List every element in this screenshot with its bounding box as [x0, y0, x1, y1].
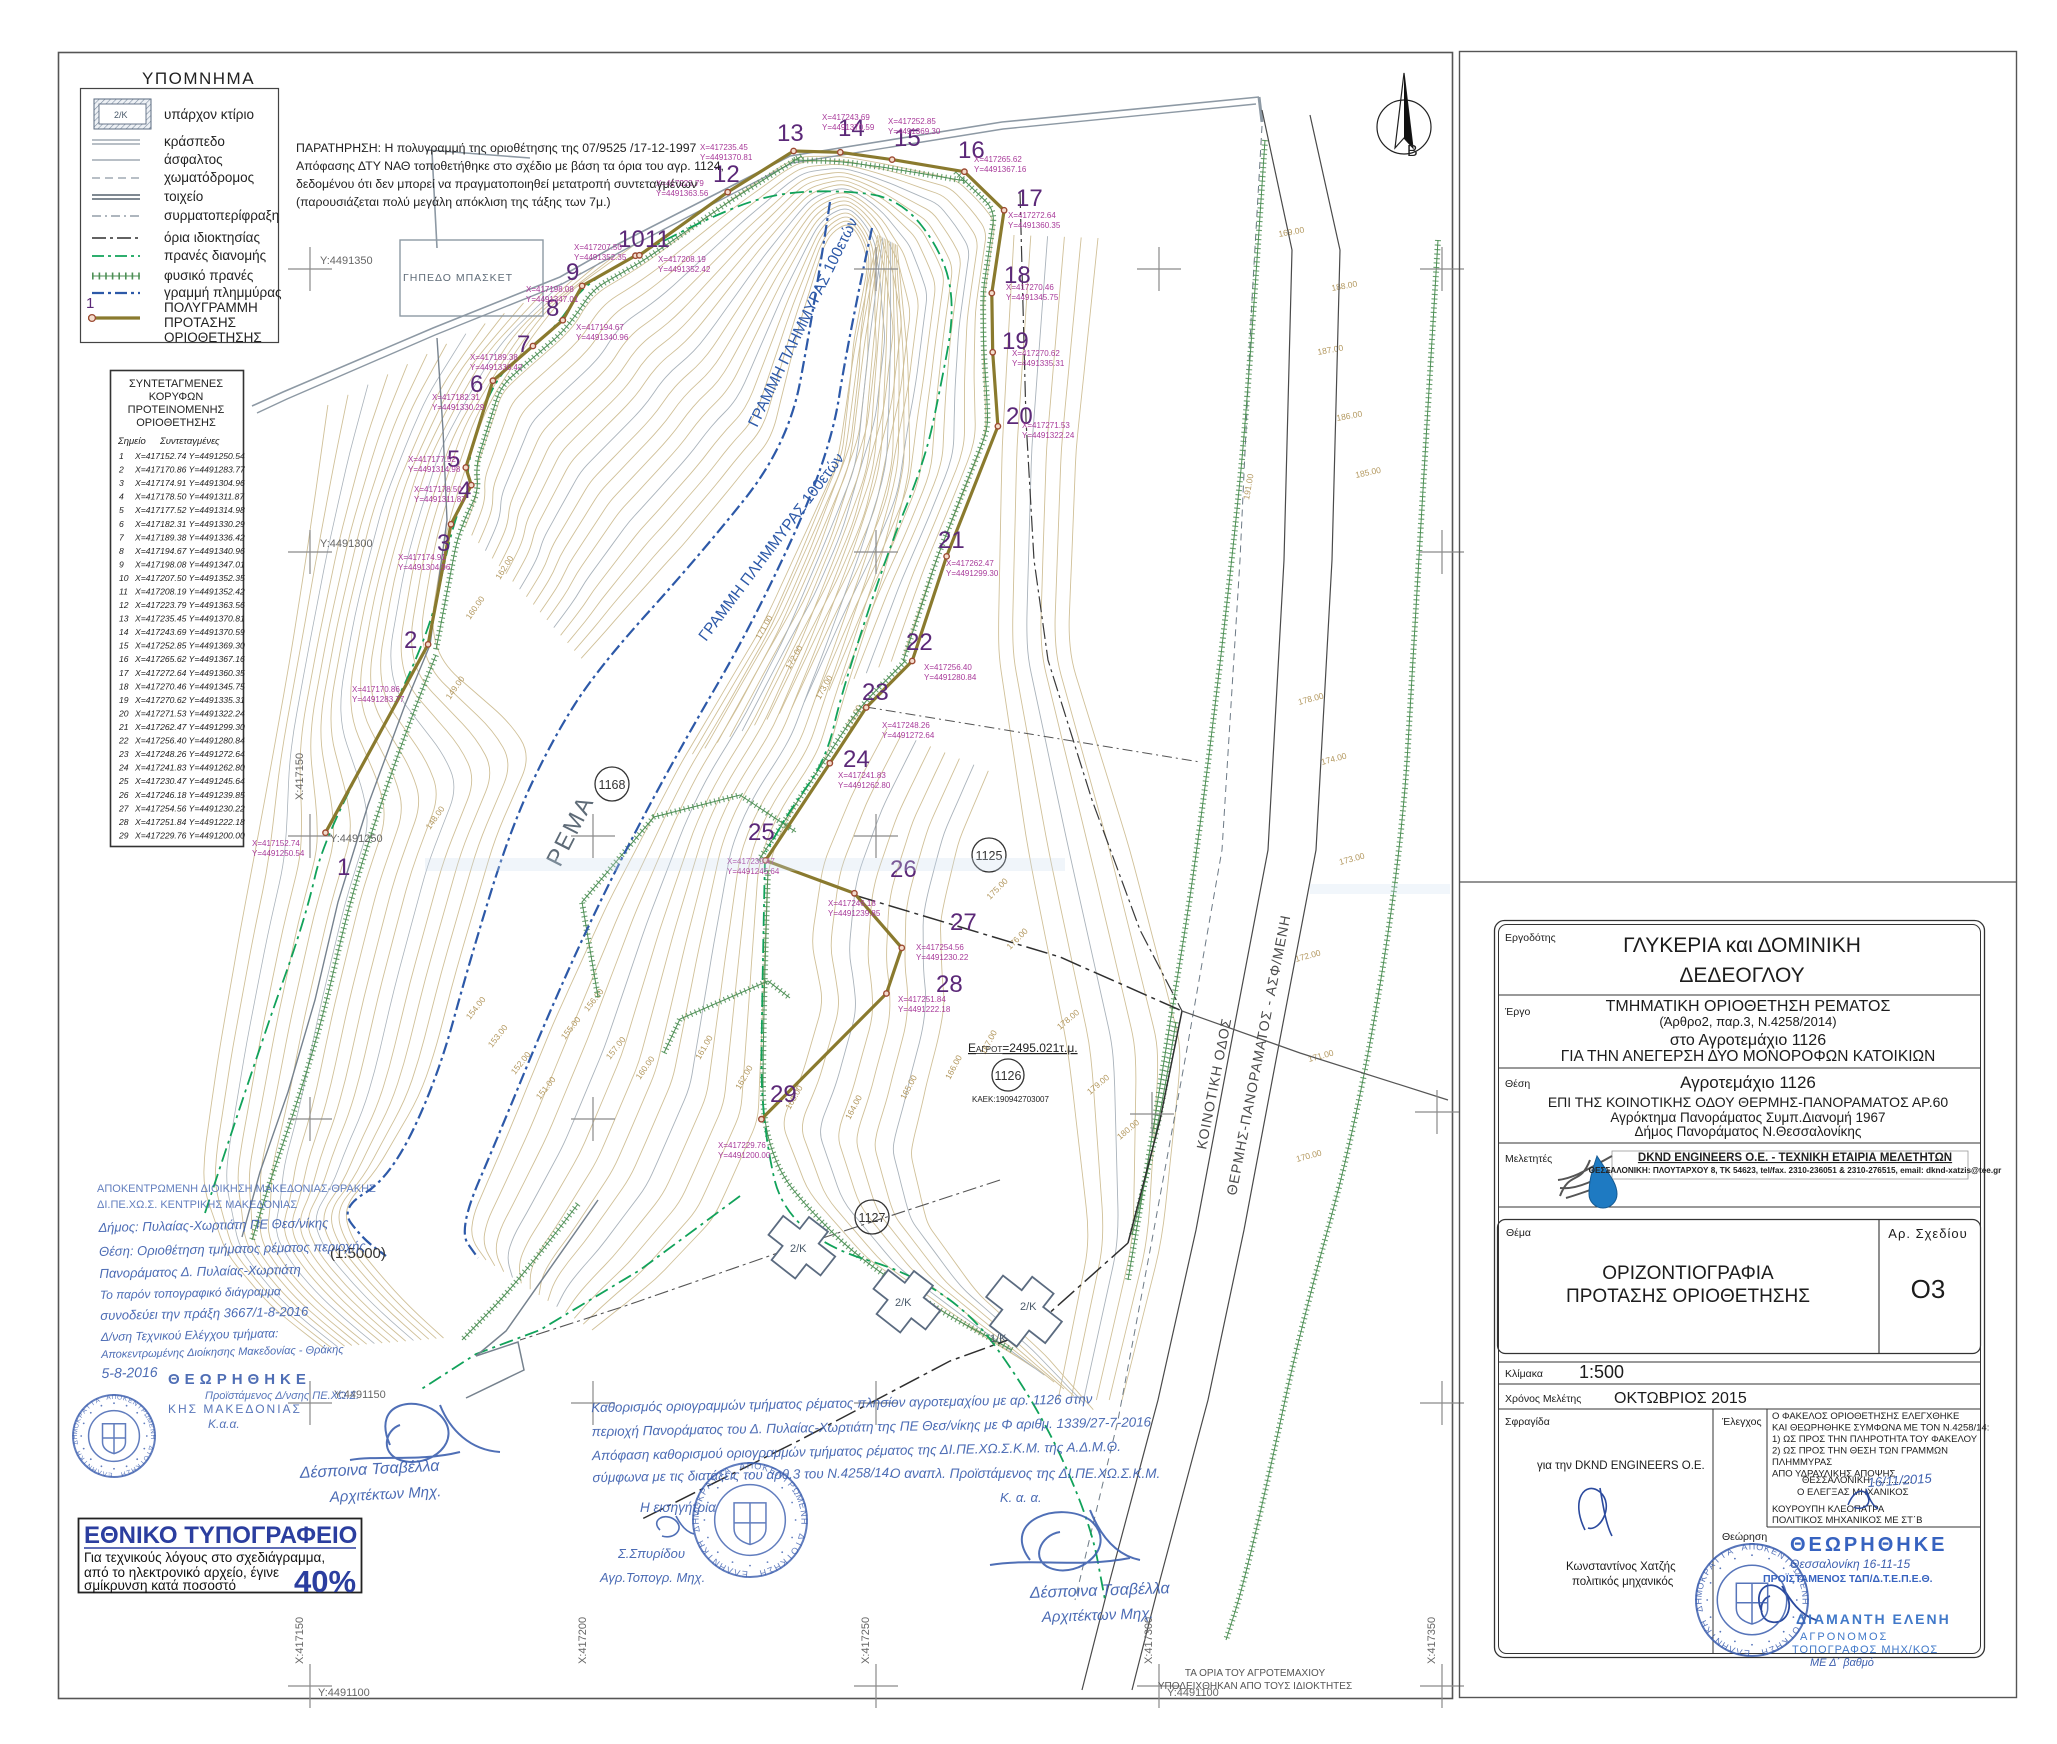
svg-text:X=417272.64: X=417272.64: [1008, 211, 1056, 220]
svg-text:Η: Η: [1694, 1598, 1704, 1605]
svg-text:Έργο: Έργο: [1504, 1006, 1530, 1018]
svg-text:ΜΕ Δ΄ βαθμό: ΜΕ Δ΄ βαθμό: [1810, 1657, 1874, 1669]
svg-text:Y=4491283.77: Y=4491283.77: [352, 695, 405, 704]
svg-text:28: 28: [118, 817, 129, 827]
svg-text:1: 1: [86, 295, 94, 312]
svg-text:17: 17: [1016, 185, 1043, 212]
svg-text:υπάρχον κτίριο: υπάρχον κτίριο: [164, 107, 254, 122]
svg-text:Y=4491370.59: Y=4491370.59: [822, 123, 875, 132]
svg-text:Y=4491239.85: Y=4491239.85: [828, 909, 881, 918]
svg-text:Y=4491304.96: Y=4491304.96: [398, 563, 451, 572]
svg-text:X=417251.84 Y=4491222.18: X=417251.84 Y=4491222.18: [134, 817, 245, 827]
svg-text:X=417243.69: X=417243.69: [822, 113, 870, 122]
svg-text:ΤΑ ΟΡΙΑ ΤΟΥ ΑΓΡΟΤΕΜΑΧΙΟΥ: ΤΑ ΟΡΙΑ ΤΟΥ ΑΓΡΟΤΕΜΑΧΙΟΥ: [1185, 1668, 1326, 1679]
svg-text:Y=4491250.54: Y=4491250.54: [252, 849, 305, 858]
svg-text:ΔΙ.ΠΕ.ΧΩ.Σ. ΚΕΝΤΡΙΚΗΣ ΜΑΚΕΔΟ: ΔΙ.ΠΕ.ΧΩ.Σ. ΚΕΝΤΡΙΚΗΣ ΜΑΚΕΔΟΝΙΑΣ: [97, 1199, 297, 1211]
svg-text:Π: Π: [1749, 1542, 1755, 1552]
svg-text:X=417182.31: X=417182.31: [432, 393, 480, 402]
svg-text:X=417251.84: X=417251.84: [898, 995, 946, 1004]
svg-text:X:417250: X:417250: [860, 1617, 872, 1664]
svg-text:ΓΙΑ ΤΗΝ ΑΝΕΓΕΡΣΗ ΔΥΟ ΜΟΝΟΡΟΦΩΝ: ΓΙΑ ΤΗΝ ΑΝΕΓΕΡΣΗ ΔΥΟ ΜΟΝΟΡΟΦΩΝ ΚΑΤΟΙΚΙΩΝ: [1561, 1048, 1936, 1065]
svg-text:X=417223.79 Y=4491363.56: X=417223.79 Y=4491363.56: [134, 600, 245, 610]
svg-text:ΚΗΣ ΜΑΚΕΔΟΝΙΑΣ: ΚΗΣ ΜΑΚΕΔΟΝΙΑΣ: [168, 1402, 302, 1416]
svg-text:1: 1: [119, 451, 124, 461]
svg-text:2/K: 2/K: [895, 1297, 912, 1309]
svg-text:X=417254.56 Y=4491230.22: X=417254.56 Y=4491230.22: [134, 803, 245, 813]
svg-text:ΕΠΙ ΤΗΣ ΚΟΙΝΟΤΙΚΗΣ ΟΔΟΥ ΘΕΡΜΗΣ: ΕΠΙ ΤΗΣ ΚΟΙΝΟΤΙΚΗΣ ΟΔΟΥ ΘΕΡΜΗΣ-ΠΑΝΟΡΑΜΑΤ…: [1548, 1094, 1949, 1110]
svg-text:X=417194.67 Y=4491340.96: X=417194.67 Y=4491340.96: [134, 546, 245, 556]
svg-text:Y=4491369.30: Y=4491369.30: [888, 127, 941, 136]
svg-text:X=417177.52 Y=4491314.98: X=417177.52 Y=4491314.98: [134, 505, 245, 515]
svg-text:X=417170.86: X=417170.86: [352, 685, 400, 694]
svg-text:X=417198.08: X=417198.08: [526, 285, 574, 294]
svg-text:Ε: Ε: [1743, 1648, 1750, 1659]
svg-text:20: 20: [118, 709, 129, 719]
svg-text:Y=4491262.80: Y=4491262.80: [838, 781, 891, 790]
svg-text:9: 9: [119, 559, 124, 569]
svg-text:X=417256.40 Y=4491280.84: X=417256.40 Y=4491280.84: [134, 736, 245, 746]
svg-text:X=417208.19: X=417208.19: [658, 255, 706, 264]
svg-text:X=417246.18: X=417246.18: [828, 899, 876, 908]
svg-text:23: 23: [862, 679, 889, 706]
svg-text:X=417198.08 Y=4491347.01: X=417198.08 Y=4491347.01: [134, 559, 245, 569]
svg-text:29: 29: [770, 1081, 797, 1108]
svg-text:ΚΟΥΡΟΥΠΗ ΚΛΕΟΠΑΤΡΑ: ΚΟΥΡΟΥΠΗ ΚΛΕΟΠΑΤΡΑ: [1772, 1504, 1885, 1515]
svg-text:B: B: [1407, 143, 1418, 160]
svg-text:Θέση: Θέση: [1505, 1078, 1530, 1090]
svg-text:Y=4491200.00: Y=4491200.00: [718, 1151, 771, 1160]
svg-text:X=417252.85 Y=4491369.30: X=417252.85 Y=4491369.30: [134, 641, 245, 651]
svg-text:Y:4491250: Y:4491250: [330, 833, 383, 845]
svg-text:ΓΗΠΕΔΟ ΜΠΑΣΚΕΤ: ΓΗΠΕΔΟ ΜΠΑΣΚΕΤ: [403, 272, 513, 284]
svg-text:26: 26: [118, 790, 129, 800]
svg-text:X:417300: X:417300: [1143, 1617, 1155, 1664]
svg-text:11: 11: [119, 587, 128, 597]
svg-text:ΘΕΣΣΑΛΟΝΙΚΗ: ΠΛΟΥΤΑΡΧΟΥ 8, ΤΚ: ΘΕΣΣΑΛΟΝΙΚΗ: ΠΛΟΥΤΑΡΧΟΥ 8, ΤΚ 54623, tel…: [1589, 1166, 2002, 1175]
svg-text:ΟΡΙΖΟΝΤΙΟΓΡΑΦΙΑ: ΟΡΙΖΟΝΤΙΟΓΡΑΦΙΑ: [1602, 1263, 1774, 1284]
svg-text:13: 13: [119, 614, 129, 624]
svg-text:ΠΡΟΤΕΙΝΟΜΕΝΗΣ: ΠΡΟΤΕΙΝΟΜΕΝΗΣ: [128, 404, 225, 416]
svg-text:Y=4491336.42: Y=4491336.42: [470, 363, 523, 372]
svg-text:X=417189.38: X=417189.38: [470, 353, 518, 362]
svg-text:ΑΠΟΚΕΝΤΡΩΜΕΝΗ ΔΙΟΙΚΗΣΗ ΜΑΚΕΔΟΝ: ΑΠΟΚΕΝΤΡΩΜΕΝΗ ΔΙΟΙΚΗΣΗ ΜΑΚΕΔΟΝΙΑΣ-ΘΡΑΚΗΣ: [97, 1183, 376, 1195]
svg-text:για την DKND ENGINEERS O.E.: για την DKND ENGINEERS O.E.: [1537, 1460, 1705, 1472]
svg-text:Y=4491322.24: Y=4491322.24: [1022, 431, 1075, 440]
svg-text:Y=4491314.98: Y=4491314.98: [408, 465, 461, 474]
svg-text:10: 10: [119, 573, 129, 583]
svg-text:στο Αγροτεμάχιο 1126: στο Αγροτεμάχιο 1126: [1670, 1032, 1826, 1049]
svg-text:Y=4491311.87: Y=4491311.87: [414, 495, 466, 504]
svg-text:X=417207.50: X=417207.50: [574, 243, 622, 252]
svg-text:X=417270.46: X=417270.46: [1006, 283, 1054, 292]
svg-text:Η: Η: [799, 1518, 809, 1525]
svg-text:Y=4491347.01: Y=4491347.01: [526, 295, 579, 304]
svg-text:ΟΡΙΟΘΕΤΗΣΗΣ: ΟΡΙΟΘΕΤΗΣΗΣ: [136, 417, 216, 429]
svg-text:Αγρόκτημα Πανοράματος Συμπ.Δια: Αγρόκτημα Πανοράματος Συμπ.Διανομή 1967: [1610, 1110, 1885, 1125]
svg-text:Απόφασης ΔΤΥ ΝΑΘ τοποθετήθηκε: Απόφασης ΔΤΥ ΝΑΘ τοποθετήθηκε στο σχέδιο…: [296, 159, 724, 173]
svg-text:Y=4491360.35: Y=4491360.35: [1008, 221, 1061, 230]
svg-text:Ε: Ε: [741, 1569, 748, 1580]
svg-text:Y=4491330.29: Y=4491330.29: [432, 403, 485, 412]
svg-text:9: 9: [566, 259, 579, 286]
svg-text:21: 21: [938, 527, 965, 554]
svg-text:11: 11: [645, 226, 670, 253]
svg-text:Y=4491272.64: Y=4491272.64: [882, 731, 935, 740]
svg-text:22: 22: [118, 736, 129, 746]
svg-text:Αγρ.Τοπογρ. Μηχ.: Αγρ.Τοπογρ. Μηχ.: [599, 1570, 705, 1585]
svg-text:24: 24: [843, 746, 870, 773]
svg-text:Y=4491335.31: Y=4491335.31: [1012, 359, 1065, 368]
svg-text:Y:4491100: Y:4491100: [318, 1687, 370, 1699]
svg-text:X=417230.47 Y=4491245.64: X=417230.47 Y=4491245.64: [134, 776, 245, 786]
svg-text:X=417271.53: X=417271.53: [1022, 421, 1070, 430]
svg-text:Αρ. Σχεδίου: Αρ. Σχεδίου: [1888, 1226, 1967, 1241]
svg-text:ΚΟΡΥΦΩΝ: ΚΟΡΥΦΩΝ: [149, 391, 204, 403]
svg-text:ΥΠΟΜΝΗΜΑ: ΥΠΟΜΝΗΜΑ: [142, 69, 255, 88]
svg-text:10: 10: [618, 226, 645, 253]
svg-text:X=417270.46 Y=4491345.75: X=417270.46 Y=4491345.75: [134, 681, 245, 691]
svg-text:X:417350: X:417350: [1426, 1617, 1438, 1664]
svg-text:X=417152.74 Y=4491250.54: X=417152.74 Y=4491250.54: [134, 451, 245, 461]
svg-text:27: 27: [118, 803, 130, 813]
svg-text:25: 25: [748, 819, 775, 846]
svg-text:Y=4491352.42: Y=4491352.42: [658, 265, 711, 274]
svg-text:Δήμος Πανοράματος Ν.Θεσσαλονί: Δήμος Πανοράματος Ν.Θεσσαλονίκης: [1635, 1124, 1862, 1139]
svg-text:Ο ΦΑΚΕΛΟΣ ΟΡΙΟΘΕΤΗΣΗΣ ΕΛΕΓΧΘΗΚ: Ο ΦΑΚΕΛΟΣ ΟΡΙΟΘΕΤΗΣΗΣ ΕΛΕΓΧΘΗΚΕ: [1772, 1411, 1959, 1422]
svg-text:X:417150: X:417150: [294, 1617, 306, 1664]
svg-text:σμίκρυνση κατά ποσοστό: σμίκρυνση κατά ποσοστό: [84, 1578, 236, 1593]
svg-text:Σφραγίδα: Σφραγίδα: [1505, 1416, 1550, 1428]
svg-text:ΑΓΡΟΝΟΜΟΣ: ΑΓΡΟΝΟΜΟΣ: [1800, 1631, 1888, 1643]
svg-text:δεδομένου ότι δεν μπορεί να πρ: δεδομένου ότι δεν μπορεί να πραγματοποιη…: [296, 177, 697, 191]
svg-text:X=417189.38 Y=4491336.42: X=417189.38 Y=4491336.42: [134, 532, 245, 542]
svg-text:Μελετητές: Μελετητές: [1505, 1153, 1552, 1165]
svg-text:φυσικό πρανές: φυσικό πρανές: [164, 268, 254, 283]
svg-text:X=417241.83: X=417241.83: [838, 771, 886, 780]
svg-text:X=417265.62 Y=4491367.16: X=417265.62 Y=4491367.16: [134, 654, 245, 664]
svg-text:X=417265.62: X=417265.62: [974, 155, 1022, 164]
svg-text:Y=4491230.22: Y=4491230.22: [916, 953, 969, 962]
svg-text:ΓΛΥΚΕΡΙΑ και ΔΟΜΙΝΙΚΗ: ΓΛΥΚΕΡΙΑ και ΔΟΜΙΝΙΚΗ: [1623, 934, 1861, 957]
svg-text:X=417229.76 Y=4491200.00: X=417229.76 Y=4491200.00: [134, 830, 245, 840]
svg-text:3: 3: [119, 478, 124, 488]
svg-text:πρανές διανομής: πρανές διανομής: [164, 248, 267, 263]
svg-text:X=417178.50: X=417178.50: [414, 485, 462, 494]
svg-text:Η: Η: [149, 1434, 156, 1439]
svg-text:Y=4491345.75: Y=4491345.75: [1006, 293, 1059, 302]
svg-text:Y=4491340.96: Y=4491340.96: [576, 333, 629, 342]
svg-text:Y:4491350: Y:4491350: [320, 255, 373, 267]
svg-text:Y=4491352.35: Y=4491352.35: [574, 253, 627, 262]
svg-text:συρματοπερίφραξη: συρματοπερίφραξη: [164, 208, 279, 223]
svg-text:X=417270.62: X=417270.62: [1012, 349, 1060, 358]
svg-text:1) ΩΣ ΠΡΟΣ ΤΗΝ ΠΛΗΡΟΤΗΤΑ ΤΟΥ Φ: 1) ΩΣ ΠΡΟΣ ΤΗΝ ΠΛΗΡΟΤΗΤΑ ΤΟΥ ΦΑΚΕΛΟΥ: [1772, 1434, 1978, 1445]
svg-text:X=417178.50 Y=4491311.87: X=417178.50 Y=4491311.87: [134, 492, 245, 502]
svg-text:X=417174.91 Y=4491304.96: X=417174.91 Y=4491304.96: [134, 478, 245, 488]
svg-text:ΤΟΠΟΓΡΑΦΟΣ ΜΗΧ/ΚΟΣ: ΤΟΠΟΓΡΑΦΟΣ ΜΗΧ/ΚΟΣ: [1792, 1644, 1938, 1656]
svg-text:κράσπεδο: κράσπεδο: [164, 134, 225, 149]
svg-text:X=417262.47 Y=4491299.30: X=417262.47 Y=4491299.30: [134, 722, 245, 732]
svg-text:Y=4491280.84: Y=4491280.84: [924, 673, 977, 682]
svg-text:άσφαλτος: άσφαλτος: [164, 152, 223, 167]
svg-text:27: 27: [950, 909, 977, 936]
svg-text:X=417177.52: X=417177.52: [408, 455, 456, 464]
svg-text:ΣΥΝΤΕΤΑΓΜΕΝΕΣ: ΣΥΝΤΕΤΑΓΜΕΝΕΣ: [129, 378, 223, 390]
svg-text:Η: Η: [1800, 1598, 1810, 1605]
svg-text:24: 24: [118, 763, 129, 773]
svg-text:12: 12: [119, 600, 129, 610]
svg-text:1126: 1126: [995, 1069, 1022, 1083]
svg-text:14: 14: [119, 627, 129, 637]
svg-text:ΠΡΟΤΑΣΗΣ ΟΡΙΟΘΕΤΗΣΗΣ: ΠΡΟΤΑΣΗΣ ΟΡΙΟΘΕΤΗΣΗΣ: [1566, 1286, 1810, 1307]
svg-text:ΠΑΡΑΤΗΡΗΣΗ: Η πολυγραμμή της ο: ΠΑΡΑΤΗΡΗΣΗ: Η πολυγραμμή της οριοθέτησης…: [296, 141, 697, 155]
svg-text:22: 22: [906, 629, 933, 656]
svg-text:2: 2: [118, 465, 124, 475]
svg-text:X=417241.83 Y=4491262.80: X=417241.83 Y=4491262.80: [134, 763, 245, 773]
svg-text:Y=4491222.18: Y=4491222.18: [898, 1005, 951, 1014]
svg-text:ΟΡΙΟΘΕΤΗΣΗΣ: ΟΡΙΟΘΕΤΗΣΗΣ: [164, 330, 262, 345]
svg-text:X=417182.31 Y=4491330.29: X=417182.31 Y=4491330.29: [134, 519, 245, 529]
svg-text:4: 4: [119, 492, 124, 502]
svg-text:X=417256.40: X=417256.40: [924, 663, 972, 672]
svg-text:ΚΑΕΚ:190942703007: ΚΑΕΚ:190942703007: [972, 1095, 1050, 1104]
svg-text:Θεσσαλονίκη 16-11-15: Θεσσαλονίκη 16-11-15: [1790, 1557, 1910, 1571]
svg-text:19: 19: [119, 695, 129, 705]
svg-text:X=417246.18 Y=4491239.85: X=417246.18 Y=4491239.85: [134, 790, 245, 800]
svg-text:X=417248.26: X=417248.26: [882, 721, 930, 730]
svg-text:X=417174.91: X=417174.91: [398, 553, 446, 562]
svg-text:2: 2: [404, 627, 417, 654]
svg-text:28: 28: [936, 971, 963, 998]
svg-text:1: 1: [337, 854, 350, 881]
svg-text:ΠΡΟΪΣΤΑΜΕΝΟΣ ΤΔΠ/Δ.Τ.Ε.Π.Ε.Θ.: ΠΡΟΪΣΤΑΜΕΝΟΣ ΤΔΠ/Δ.Τ.Ε.Π.Ε.Θ.: [1763, 1572, 1933, 1585]
svg-text:X:417150: X:417150: [294, 753, 306, 800]
svg-text:DKND ENGINEERS O.E. - ΤΕΧΝΙΚΗ: DKND ENGINEERS O.E. - ΤΕΧΝΙΚΗ ΕΤΑΙΡΙΑ ΜΕ…: [1638, 1152, 1952, 1164]
svg-text:1168: 1168: [599, 778, 626, 792]
svg-text:40%: 40%: [294, 1564, 356, 1599]
svg-text:Σημείο: Σημείο: [117, 436, 146, 447]
svg-text:ΥΠΟΔΕΙΧΘΗΚΑΝ ΑΠΟ ΤΟΥΣ ΙΔΙΟΚ: ΥΠΟΔΕΙΧΘΗΚΑΝ ΑΠΟ ΤΟΥΣ ΙΔΙΟΚΤΗΤΕΣ: [1158, 1681, 1352, 1692]
svg-text:5: 5: [119, 505, 124, 515]
svg-text:16: 16: [119, 654, 129, 664]
svg-text:Y=4491367.16: Y=4491367.16: [974, 165, 1027, 174]
svg-text:X=417248.26 Y=4491272.64: X=417248.26 Y=4491272.64: [134, 749, 245, 759]
svg-text:13: 13: [777, 120, 804, 147]
svg-text:Θέμα: Θέμα: [1506, 1227, 1531, 1239]
svg-text:X=417235.45: X=417235.45: [700, 143, 748, 152]
svg-text:Σ.Σπυρίδου: Σ.Σπυρίδου: [617, 1546, 685, 1561]
svg-text:18: 18: [119, 681, 129, 691]
svg-text:O3: O3: [1911, 1274, 1946, 1304]
svg-text:Η εισηγήτρια: Η εισηγήτρια: [640, 1500, 717, 1515]
svg-text:5-8-2016: 5-8-2016: [101, 1364, 158, 1381]
svg-text:ΤΜΗΜΑΤΙΚΗ ΟΡΙΟΘΕΤΗΣΗ ΡΕΜΑΤΟΣ: ΤΜΗΜΑΤΙΚΗ ΟΡΙΟΘΕΤΗΣΗ ΡΕΜΑΤΟΣ: [1606, 998, 1891, 1015]
svg-text:X=417208.19 Y=4491352.42: X=417208.19 Y=4491352.42: [134, 587, 245, 597]
svg-text:Κ. α. α.: Κ. α. α.: [1000, 1490, 1042, 1505]
svg-text:Αγροτεμάχιο 1126: Αγροτεμάχιο 1126: [1680, 1073, 1816, 1092]
svg-text:Προϊστάμενος Δ/νσης ΠΕ.ΧΩ.Σ.: Προϊστάμενος Δ/νσης ΠΕ.ΧΩ.Σ.: [205, 1390, 359, 1402]
svg-text:21: 21: [118, 722, 129, 732]
svg-text:ΟΚΤΩΒΡΙΟΣ 2015: ΟΚΤΩΒΡΙΟΣ 2015: [1614, 1390, 1747, 1407]
svg-text:τοιχείο: τοιχείο: [164, 189, 203, 204]
svg-text:1127: 1127: [859, 1211, 886, 1225]
svg-text:2/K: 2/K: [790, 1243, 807, 1255]
svg-text:8: 8: [119, 546, 124, 556]
svg-text:Ν: Ν: [1800, 1590, 1811, 1598]
svg-text:17: 17: [119, 668, 130, 678]
svg-text:χωματόδρομος: χωματόδρομος: [164, 170, 255, 185]
svg-text:15: 15: [119, 641, 129, 651]
svg-text:2) ΩΣ ΠΡΟΣ ΤΗΝ ΘΕΣΗ ΤΩΝ ΓΡΑΜΜΩ: 2) ΩΣ ΠΡΟΣ ΤΗΝ ΘΕΣΗ ΤΩΝ ΓΡΑΜΜΩΝ: [1772, 1446, 1948, 1457]
svg-text:Y=4491299.30: Y=4491299.30: [946, 569, 999, 578]
svg-text:X=417271.53 Y=4491322.24: X=417271.53 Y=4491322.24: [134, 709, 245, 719]
svg-text:X:417200: X:417200: [577, 1617, 589, 1664]
svg-text:X=417235.45 Y=4491370.81: X=417235.45 Y=4491370.81: [134, 614, 245, 624]
svg-text:2/K: 2/K: [1020, 1301, 1037, 1313]
svg-text:X=417254.56: X=417254.56: [916, 943, 964, 952]
svg-text:Κλίμακα: Κλίμακα: [1505, 1368, 1543, 1380]
svg-text:X=417252.85: X=417252.85: [888, 117, 936, 126]
svg-text:X=417229.76: X=417229.76: [718, 1141, 766, 1150]
svg-text:25: 25: [118, 776, 129, 786]
svg-text:ΘΕΩΡΗΘΗΚΕ: ΘΕΩΡΗΘΗΚΕ: [168, 1371, 311, 1388]
svg-text:Έλεγχος: Έλεγχος: [1721, 1416, 1762, 1428]
svg-text:X=417207.50 Y=4491352.35: X=417207.50 Y=4491352.35: [134, 573, 245, 583]
svg-text:X=417270.62 Y=4491335.31: X=417270.62 Y=4491335.31: [134, 695, 245, 705]
svg-text:πολιτικός μηχανικός: πολιτικός μηχανικός: [1572, 1576, 1674, 1588]
svg-text:Για τεχνικούς λόγους στο σ: Για τεχνικούς λόγους στο σχεδιάγραμμα,: [84, 1550, 325, 1565]
svg-text:ΕΘΝΙΚΟ ΤΥΠΟΓΡΑΦΕΙΟ: ΕΘΝΙΚΟ ΤΥΠΟΓΡΑΦΕΙΟ: [84, 1522, 357, 1549]
svg-text:Ο αναπλ. Προϊστάμενος της ΔΙ.: Ο αναπλ. Προϊστάμενος της ΔΙ.ΠΕ.ΧΩ.Σ.Κ.Μ…: [890, 1466, 1160, 1481]
svg-text:X=417243.69 Y=4491370.59: X=417243.69 Y=4491370.59: [134, 627, 245, 637]
svg-text:Συντεταγμένες: Συντεταγμένες: [159, 436, 220, 447]
svg-text:γραμμή πλημμύρας: γραμμή πλημμύρας: [164, 285, 282, 300]
svg-text:ΠΟΛΙΤΙΚΟΣ ΜΗΧΑΝΙΚΟΣ ΜΕ ΣΤ΄Β: ΠΟΛΙΤΙΚΟΣ ΜΗΧΑΝΙΚΟΣ ΜΕ ΣΤ΄Β: [1772, 1515, 1922, 1526]
svg-text:Χρόνος Μελέτης: Χρόνος Μελέτης: [1505, 1393, 1581, 1405]
svg-text:2/Κ: 2/Κ: [114, 110, 128, 120]
svg-text:X=417152.74: X=417152.74: [252, 839, 300, 848]
svg-text:(Άρθρο2, παρ.3, Ν.4258/2014): (Άρθρο2, παρ.3, Ν.4258/2014): [1659, 1014, 1836, 1029]
svg-text:ΔΙΑΜΑΝΤΗ ΕΛΕΝΗ: ΔΙΑΜΑΝΤΗ ΕΛΕΝΗ: [1796, 1611, 1951, 1627]
svg-text:29: 29: [118, 830, 129, 840]
svg-text:όρια ιδιοκτησίας: όρια ιδιοκτησίας: [164, 230, 260, 245]
svg-text:7: 7: [517, 331, 530, 358]
svg-text:1:500: 1:500: [1579, 1362, 1624, 1382]
svg-text:Π: Π: [747, 1461, 754, 1471]
svg-text:X=417272.64 Y=4491360.35: X=417272.64 Y=4491360.35: [134, 668, 245, 678]
svg-text:Κ.α.α.: Κ.α.α.: [208, 1417, 240, 1431]
svg-text:X=417170.86 Y=4491283.77: X=417170.86 Y=4491283.77: [134, 465, 246, 475]
svg-text:6: 6: [119, 519, 124, 529]
svg-text:X=417262.47: X=417262.47: [946, 559, 994, 568]
svg-text:ΘΕΩΡΗΘΗΚΕ: ΘΕΩΡΗΘΗΚΕ: [1790, 1534, 1948, 1556]
svg-text:ΠΡΟΤΑΣΗΣ: ΠΡΟΤΑΣΗΣ: [164, 315, 236, 330]
svg-text:Κωνσταντίνος Χατζής: Κωνσταντίνος Χατζής: [1566, 1561, 1676, 1573]
svg-text:X=417194.67: X=417194.67: [576, 323, 624, 332]
svg-text:ΚΑΙ ΘΕΩΡΗΘΗΚΕ ΣΥΜΦΩΝΑ ΜΕ ΤΟΝ Ν: ΚΑΙ ΘΕΩΡΗΘΗΚΕ ΣΥΜΦΩΝΑ ΜΕ ΤΟΝ Ν.4258/14:: [1772, 1423, 1989, 1434]
svg-text:(παρουσιάζεται πολύ μεγάλη από: (παρουσιάζεται πολύ μεγάλη απόκλιση της …: [296, 195, 611, 209]
svg-text:Η: Η: [691, 1518, 701, 1525]
svg-text:ΠΟΛΥΓΡΑΜΜΗ: ΠΟΛΥΓΡΑΜΜΗ: [164, 300, 258, 315]
svg-text:1/K: 1/K: [990, 1333, 1007, 1345]
svg-text:23: 23: [118, 749, 129, 759]
svg-text:Y:4491300: Y:4491300: [320, 538, 373, 550]
svg-text:ΠΛΗΜΜΥΡΑΣ: ΠΛΗΜΜΥΡΑΣ: [1772, 1457, 1832, 1468]
svg-text:Ν: Ν: [799, 1510, 810, 1518]
svg-text:Εργοδότης: Εργοδότης: [1505, 932, 1556, 944]
svg-text:ΔΕΔΕΟΓΛΟΥ: ΔΕΔΕΟΓΛΟΥ: [1679, 964, 1804, 987]
